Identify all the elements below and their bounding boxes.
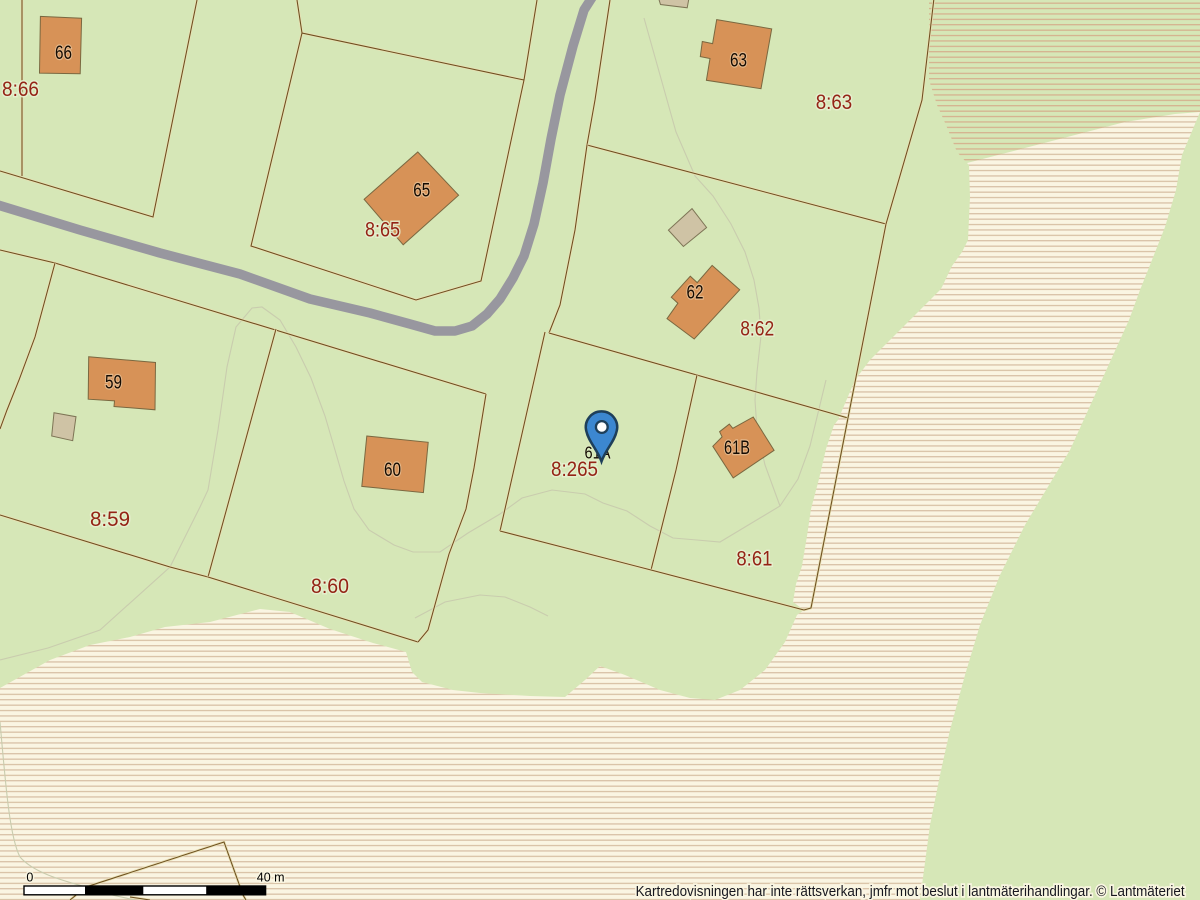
svg-text:60: 60 [384,460,401,481]
svg-text:61B: 61B [724,438,750,459]
svg-text:8:62: 8:62 [740,318,774,341]
svg-text:8:59: 8:59 [90,508,130,531]
svg-text:8:66: 8:66 [2,78,39,101]
svg-text:40 m: 40 m [257,871,285,885]
svg-text:Kartredovisningen har inte rät: Kartredovisningen har inte rättsverkan, … [636,883,1186,900]
svg-text:8:61: 8:61 [736,548,772,571]
svg-text:8:60: 8:60 [311,575,349,598]
svg-text:8:65: 8:65 [365,218,400,241]
svg-text:8:63: 8:63 [816,91,853,114]
svg-text:0: 0 [26,871,33,885]
svg-text:65: 65 [413,181,430,202]
svg-text:66: 66 [55,43,72,64]
svg-text:8:265: 8:265 [551,458,598,481]
svg-text:62: 62 [687,283,704,304]
svg-text:59: 59 [105,373,122,394]
svg-text:63: 63 [730,51,747,72]
